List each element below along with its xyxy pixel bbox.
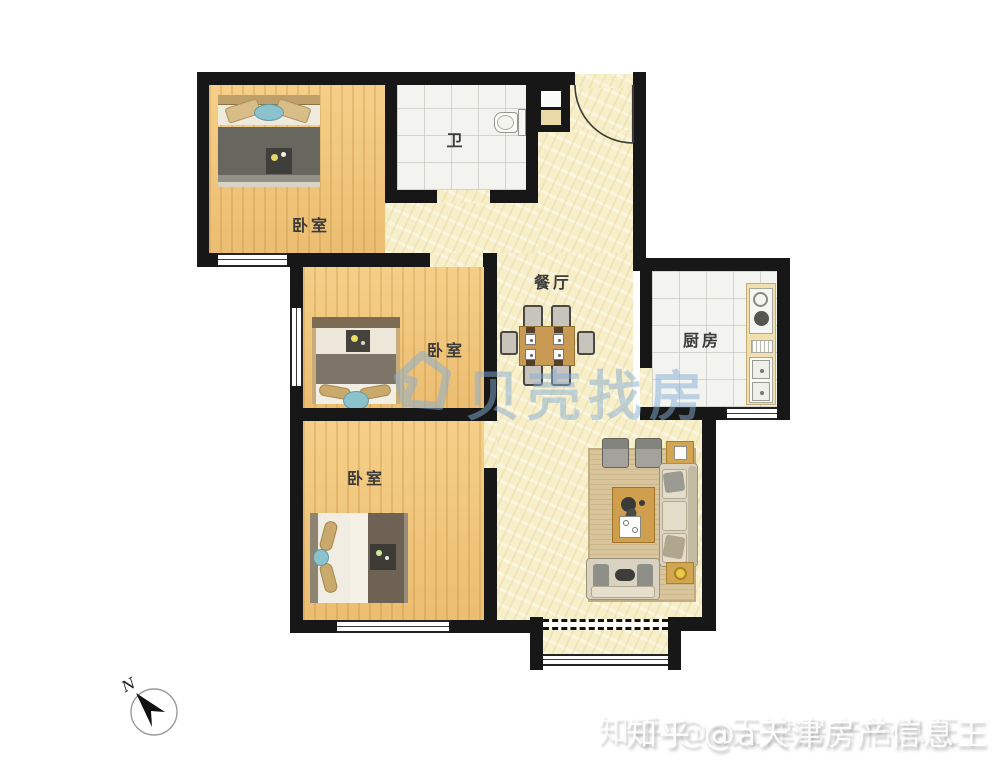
- bed-tray: [266, 148, 292, 174]
- blanket-fold: [218, 175, 320, 182]
- window: [218, 253, 287, 267]
- bed-sheet: [350, 513, 370, 603]
- side-table: [666, 562, 694, 584]
- window: [727, 407, 777, 420]
- beike-logo-icon: [383, 346, 457, 418]
- round-pillow: [313, 549, 329, 566]
- compass: N: [114, 674, 188, 744]
- sink-basin: [752, 382, 770, 401]
- footboard: [312, 317, 400, 328]
- burner: [754, 311, 769, 326]
- zhihu-watermark: 知乎 @a天津房产信息王: [626, 709, 989, 754]
- toilet-seat: [497, 115, 514, 130]
- sink: [749, 357, 773, 403]
- wall: [290, 253, 303, 308]
- sofa-back: [688, 466, 697, 566]
- wall: [197, 253, 218, 267]
- placemat: [526, 327, 535, 333]
- wall: [484, 468, 497, 620]
- armchair: [602, 438, 629, 468]
- wall: [702, 420, 716, 620]
- wall: [385, 72, 397, 203]
- coffee-table: [612, 487, 655, 543]
- loveseat-pillow: [593, 564, 609, 588]
- sofa: [659, 463, 698, 567]
- room-label-bedroom-bottom: 卧室: [347, 465, 385, 489]
- toilet: [494, 109, 526, 136]
- bed-foot: [404, 513, 408, 603]
- hall-below-bath-floor: [385, 203, 538, 253]
- toilet-tank: [518, 109, 526, 136]
- armchair: [635, 438, 662, 468]
- shaft-box-duct: [541, 110, 561, 125]
- bedroom-middle-doorway: [430, 253, 483, 267]
- cup: [674, 446, 687, 460]
- stove: [749, 288, 773, 334]
- sofa-pillow: [662, 534, 686, 559]
- burner-ring: [753, 292, 768, 307]
- entry-door: [560, 72, 652, 164]
- drain-rack: [751, 340, 773, 353]
- loveseat-pillow: [637, 564, 653, 588]
- wall: [490, 190, 538, 203]
- wall: [197, 72, 209, 265]
- wall: [530, 617, 543, 670]
- wall: [668, 631, 681, 670]
- wall: [290, 620, 337, 633]
- beike-watermark: 贝壳找房: [466, 352, 710, 431]
- sofa-pillow: [663, 471, 686, 494]
- placemat: [554, 327, 563, 333]
- loveseat: [586, 558, 660, 600]
- room-label-bathroom: 卫: [446, 127, 465, 151]
- wall: [777, 258, 790, 420]
- bed-tray: [346, 330, 370, 352]
- sink-basin: [752, 360, 770, 379]
- side-table: [666, 441, 694, 464]
- window: [337, 620, 449, 633]
- bed-bottom-bedroom: [310, 513, 408, 603]
- round-pillow: [254, 104, 284, 121]
- wall: [385, 190, 437, 203]
- gold-bowl: [674, 567, 687, 580]
- shaft-box-white: [541, 91, 561, 107]
- bed-tray: [370, 544, 396, 570]
- decor-tray: [619, 516, 641, 538]
- bed-foot: [218, 182, 320, 187]
- room-label-kitchen: 厨房: [683, 327, 721, 351]
- bed-top-bedroom: [218, 95, 320, 187]
- wall: [290, 421, 303, 633]
- room-label-bedroom-top: 卧室: [292, 212, 330, 236]
- wall: [646, 258, 790, 271]
- kitchen-counter: [746, 283, 776, 405]
- loveseat-item: [615, 569, 635, 581]
- floor-plan: 卧室 卫 餐厅 厨房 卧室 卧室 贝壳找房 知乎 @a天津房产信息王 知乎 @a…: [0, 0, 1000, 767]
- bathroom-doorway: [437, 190, 490, 203]
- wall: [449, 620, 533, 633]
- loveseat-cushion: [591, 586, 655, 598]
- window: [543, 654, 668, 666]
- plate: [553, 334, 564, 345]
- decor-dot: [639, 500, 645, 506]
- sofa-cushion: [662, 501, 687, 531]
- wall: [287, 253, 430, 267]
- plate: [525, 334, 536, 345]
- balcony-floor: [543, 629, 668, 655]
- window: [290, 308, 303, 386]
- balcony-opening: [543, 619, 668, 630]
- room-label-dining: 餐厅: [534, 269, 572, 293]
